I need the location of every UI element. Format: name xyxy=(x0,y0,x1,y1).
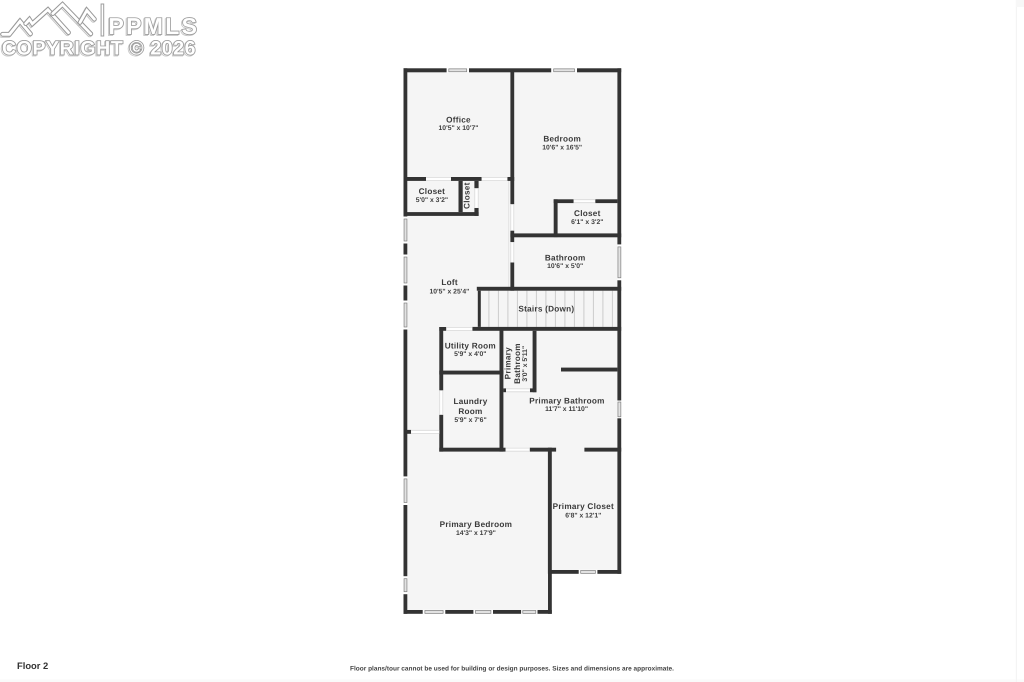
svg-text:PPMLS: PPMLS xyxy=(109,13,200,39)
svg-text:10'6" x 5'0": 10'6" x 5'0" xyxy=(547,263,583,270)
svg-text:Primary Bathroom: Primary Bathroom xyxy=(529,396,604,405)
svg-text:Floor 2: Floor 2 xyxy=(17,660,48,671)
svg-text:Loft: Loft xyxy=(441,278,457,287)
svg-text:Utility Room: Utility Room xyxy=(445,341,496,350)
svg-text:6'1" x 3'2": 6'1" x 3'2" xyxy=(571,219,603,226)
svg-text:3'0" x 5'11": 3'0" x 5'11" xyxy=(522,346,529,382)
svg-text:5'9" x 4'0": 5'9" x 4'0" xyxy=(454,351,486,358)
svg-text:10'5" x 10'7": 10'5" x 10'7" xyxy=(439,125,479,132)
svg-text:14'3" x 17'9": 14'3" x 17'9" xyxy=(456,530,496,537)
svg-text:10'6" x 16'5": 10'6" x 16'5" xyxy=(542,144,582,151)
svg-text:5'0" x 3'2": 5'0" x 3'2" xyxy=(416,197,448,204)
svg-text:Laundry: Laundry xyxy=(453,397,487,406)
svg-text:Closet: Closet xyxy=(574,209,601,218)
svg-text:11'7" x 11'10": 11'7" x 11'10" xyxy=(545,406,588,413)
svg-text:Closet: Closet xyxy=(419,187,446,196)
svg-text:5'9" x 7'6": 5'9" x 7'6" xyxy=(454,417,486,424)
svg-text:Closet: Closet xyxy=(462,182,471,209)
svg-text:10'5" x 25'4": 10'5" x 25'4" xyxy=(429,288,469,295)
svg-text:6'8" x 12'1": 6'8" x 12'1" xyxy=(565,512,601,519)
svg-text:Primary: Primary xyxy=(503,347,512,379)
svg-text:Bathroom: Bathroom xyxy=(513,343,522,384)
svg-text:Bathroom: Bathroom xyxy=(545,253,586,262)
svg-text:Primary Closet: Primary Closet xyxy=(553,502,614,511)
svg-text:Room: Room xyxy=(458,407,482,416)
svg-text:Floor plans/tour cannot be use: Floor plans/tour cannot be used for buil… xyxy=(350,665,674,672)
svg-text:Primary Bedroom: Primary Bedroom xyxy=(440,520,512,529)
svg-text:Stairs (Down): Stairs (Down) xyxy=(518,305,574,314)
svg-text:Office: Office xyxy=(446,115,471,124)
svg-text:COPYRIGHT © 2026: COPYRIGHT © 2026 xyxy=(2,38,196,60)
svg-text:Bedroom: Bedroom xyxy=(543,134,581,143)
